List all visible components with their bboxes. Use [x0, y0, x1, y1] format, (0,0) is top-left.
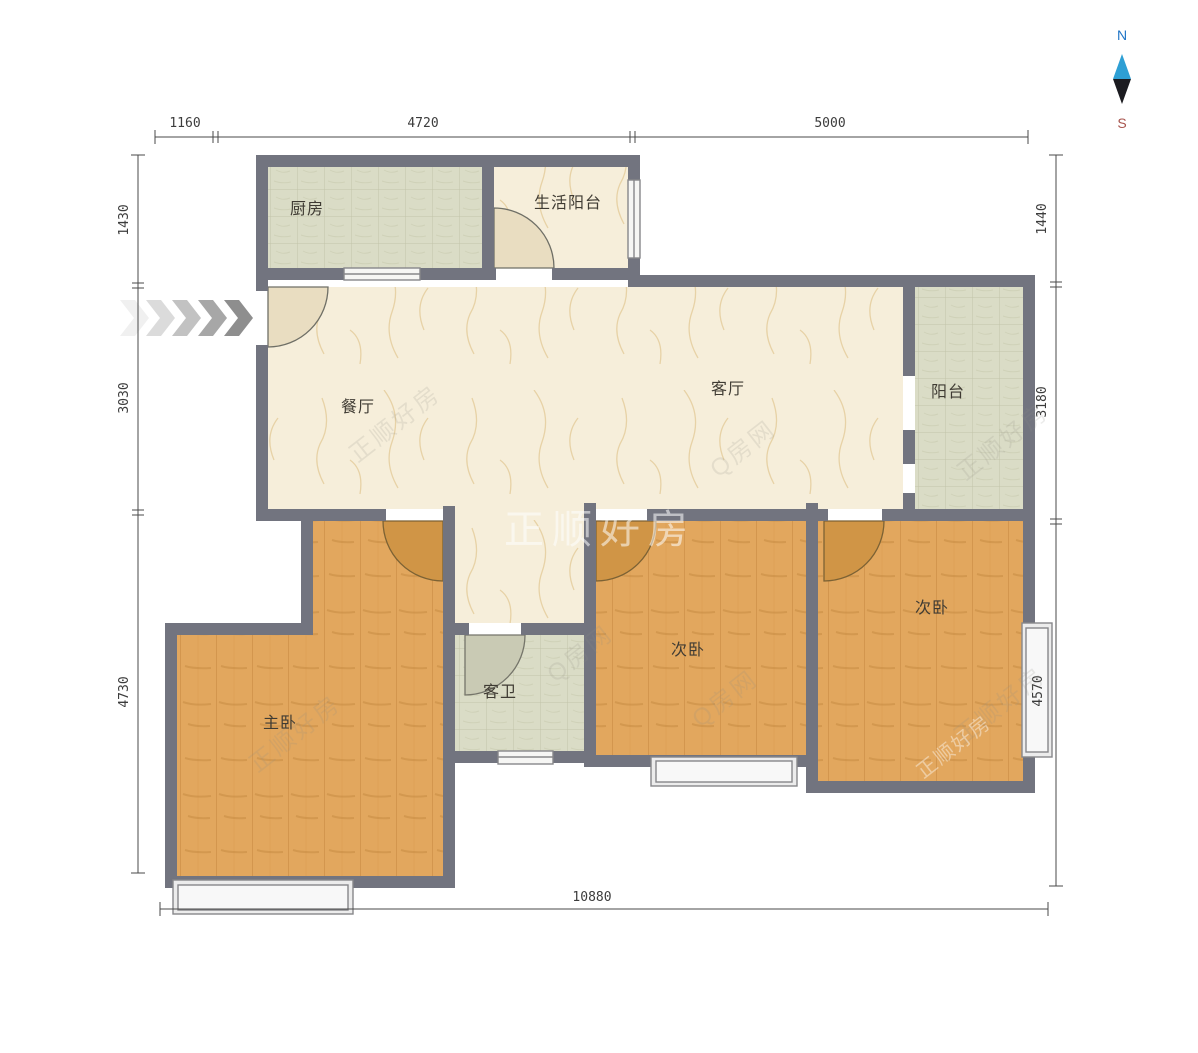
floorplan-drawing: 1160 4720 5000 1430 3030 4730 1440 3180 …: [0, 0, 1198, 1053]
living-label: 客厅: [711, 380, 745, 398]
watermark-center: 正顺好房: [504, 508, 696, 552]
dim-left-1: 1430: [117, 204, 132, 235]
kitchen-label: 厨房: [290, 200, 324, 218]
dimension-line-left: [131, 155, 145, 873]
compass-south-label: S: [1117, 115, 1126, 131]
compass-north-label: N: [1117, 27, 1127, 43]
dining-label: 餐厅: [341, 398, 375, 416]
guest-bathroom-label: 客卫: [483, 683, 517, 701]
service-balcony-window: [628, 180, 640, 258]
service-balcony-label: 生活阳台: [534, 194, 602, 212]
dim-bottom-total: 10880: [572, 890, 611, 905]
kitchen-window: [344, 268, 420, 280]
dim-left-2: 3030: [117, 382, 132, 413]
dim-top-3: 5000: [814, 116, 845, 131]
dim-right-1: 1440: [1035, 203, 1050, 234]
floorplan-page: 1160 4720 5000 1430 3030 4730 1440 3180 …: [0, 0, 1198, 1053]
entry-arrows-icon: [120, 300, 253, 336]
bedroom-right-label: 次卧: [915, 599, 949, 617]
guest-bathroom-window: [498, 751, 553, 764]
compass: N S: [1113, 27, 1131, 131]
bedroom-middle-label: 次卧: [671, 641, 705, 659]
dim-top-1: 1160: [169, 116, 200, 131]
compass-needle-north-icon: [1113, 54, 1131, 79]
balcony-label: 阳台: [931, 383, 965, 401]
bedroom-middle-bay-window: [651, 757, 797, 786]
dimension-line-top: [155, 130, 1028, 144]
compass-needle-south-icon: [1113, 79, 1131, 104]
dim-left-3: 4730: [117, 676, 132, 707]
dimension-line-right: [1049, 155, 1063, 886]
dim-top-2: 4720: [407, 116, 438, 131]
